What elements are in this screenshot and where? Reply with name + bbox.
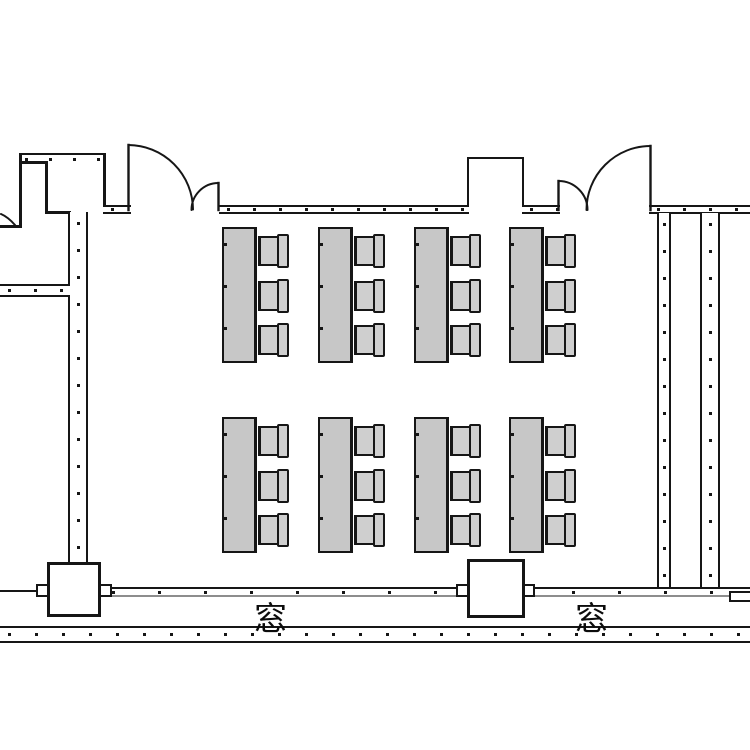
chair [450, 323, 481, 357]
window-label-right: 窓 [575, 602, 608, 635]
chair [258, 323, 289, 357]
chair [450, 469, 481, 503]
window-sill-step [729, 591, 750, 602]
top-wall-segment-b [219, 205, 469, 214]
chair [545, 513, 576, 547]
chair [545, 469, 576, 503]
closet-inner-left-wall [45, 161, 48, 214]
window-sill [98, 587, 750, 597]
chair [354, 424, 385, 458]
left-door-large-arc-icon [129, 145, 194, 210]
desk [414, 417, 449, 553]
left-door-small-arc-icon [192, 183, 219, 210]
pillar-center [467, 559, 525, 618]
bottom-exterior-wall [0, 626, 750, 643]
chair [545, 234, 576, 268]
closet-outer-left-wall [19, 153, 22, 228]
chair [354, 469, 385, 503]
corner-door-arc-icon [1, 214, 15, 225]
wall-alcove [467, 157, 524, 207]
chair [258, 279, 289, 313]
chair [354, 513, 385, 547]
right-door-small-arc-icon [559, 181, 588, 210]
chair [258, 234, 289, 268]
right-wall-inner [657, 213, 671, 587]
chair [258, 513, 289, 547]
desk [509, 417, 544, 553]
chair [354, 323, 385, 357]
desk [318, 227, 353, 363]
chair [354, 279, 385, 313]
desk [222, 227, 257, 363]
chair [545, 323, 576, 357]
desk [414, 227, 449, 363]
chair [450, 279, 481, 313]
chair [545, 279, 576, 313]
window-label-left: 窓 [254, 602, 287, 635]
pillar-left [47, 562, 101, 617]
right-wall-outer [700, 213, 720, 587]
chair [545, 424, 576, 458]
top-wall-segment-a [103, 205, 131, 214]
desk [222, 417, 257, 553]
right-door-large-arc-icon [587, 146, 651, 210]
chair [450, 234, 481, 268]
desk [318, 417, 353, 553]
left-wall [68, 212, 88, 563]
closet-right-wall [103, 155, 106, 208]
top-wall-segment-c [522, 205, 560, 214]
floor-plan: 窓 窓 [0, 0, 750, 750]
chair [258, 469, 289, 503]
left-partition-wall [0, 284, 70, 297]
closet-inner-top-wall [22, 161, 47, 164]
chair [450, 424, 481, 458]
chair [450, 513, 481, 547]
desk [509, 227, 544, 363]
closet-bottom-left-wall [0, 225, 22, 228]
chair [354, 234, 385, 268]
chair [258, 424, 289, 458]
